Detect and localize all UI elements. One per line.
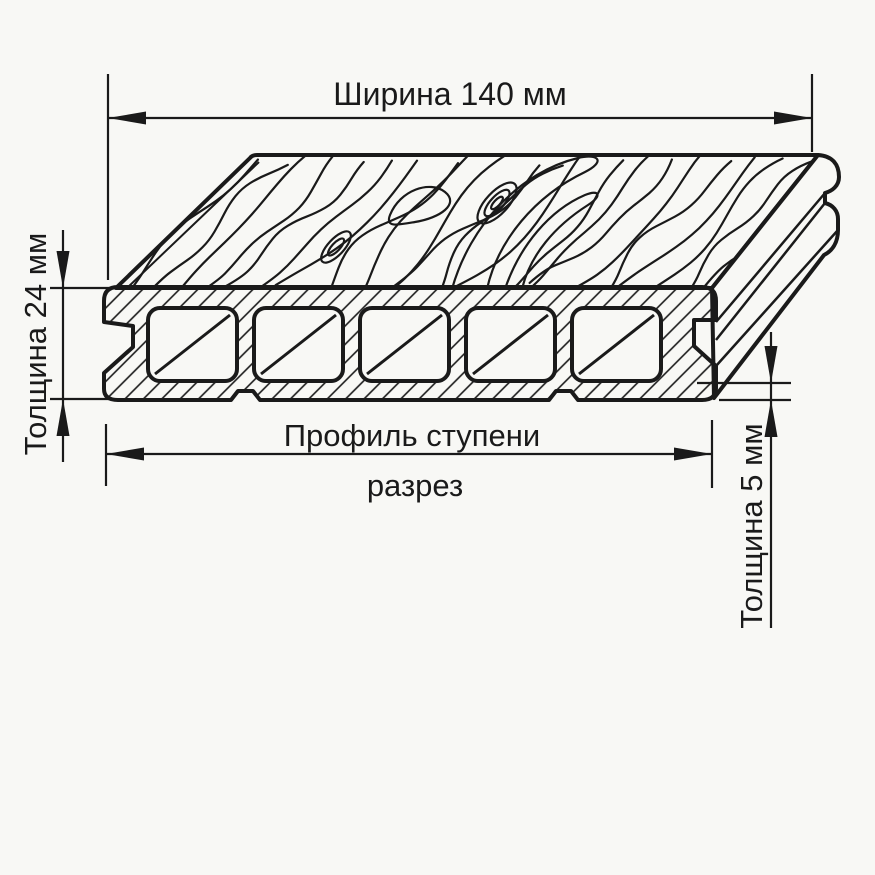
board-thickness-dimension: Толщина 24 мм <box>18 230 112 462</box>
profile-subtitle-label: разрез <box>367 468 463 503</box>
board-thickness-label: Толщина 24 мм <box>18 233 53 456</box>
hollow-channels <box>148 308 661 381</box>
board-cross-section <box>104 287 716 400</box>
profile-title-label: Профиль ступени <box>284 418 540 453</box>
arrowhead-right <box>774 112 812 125</box>
width-dimension-label: Ширина 140 мм <box>333 76 567 112</box>
arrowhead-up <box>57 399 70 436</box>
arrowhead-down <box>57 251 70 288</box>
profile-dimension: Профиль ступени разрез <box>106 418 712 503</box>
arrowhead-right <box>674 448 712 461</box>
decking-board-profile-drawing: Ширина 140 мм Толщина 24 мм Толщина 5 мм… <box>0 0 875 875</box>
lip-thickness-label: Толщина 5 мм <box>734 423 769 628</box>
arrowhead-down <box>765 346 778 383</box>
arrowhead-left <box>108 112 146 125</box>
arrowhead-left <box>106 448 144 461</box>
